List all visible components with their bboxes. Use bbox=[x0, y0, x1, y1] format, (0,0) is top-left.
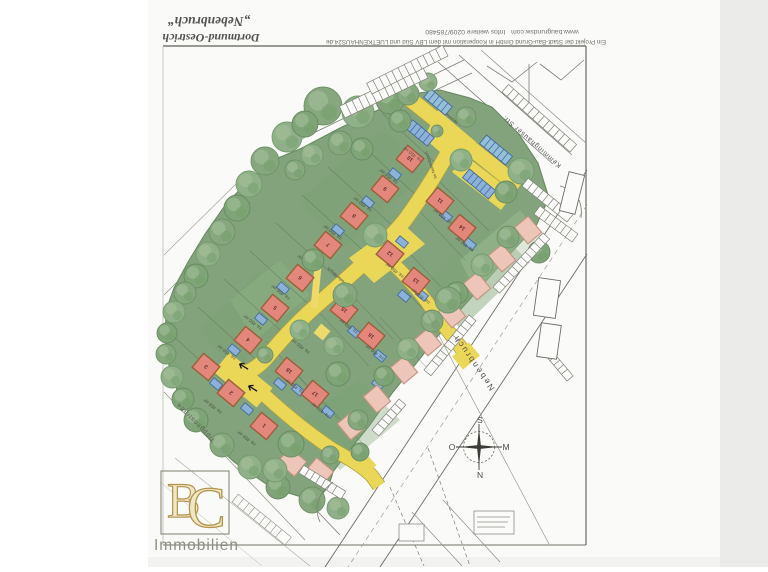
svg-text:S: S bbox=[477, 415, 483, 425]
svg-text:O: O bbox=[449, 442, 456, 452]
svg-text:Immobilien: Immobilien bbox=[154, 537, 239, 554]
svg-text:N: N bbox=[477, 470, 483, 480]
svg-text:M: M bbox=[502, 442, 509, 452]
svg-text:C: C bbox=[187, 475, 226, 540]
